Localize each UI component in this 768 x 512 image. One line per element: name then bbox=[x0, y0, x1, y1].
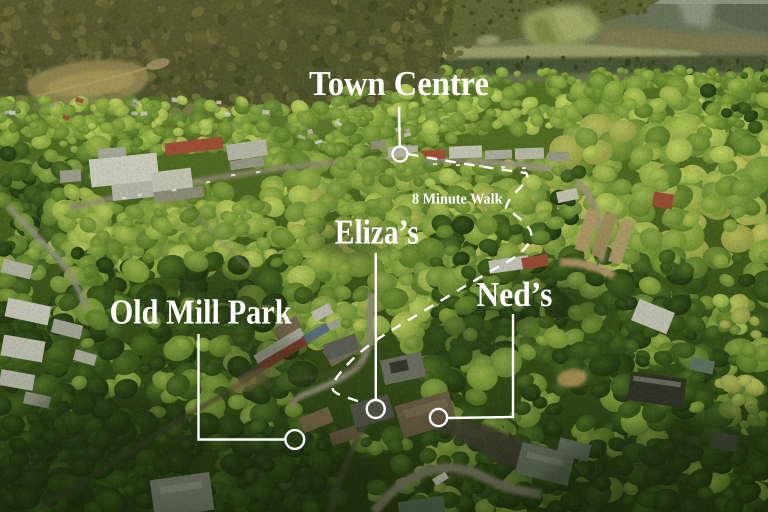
svg-text:8 Minute Walk: 8 Minute Walk bbox=[412, 192, 503, 208]
svg-text:Eliza’s: Eliza’s bbox=[335, 213, 419, 252]
svg-text:Town Centre: Town Centre bbox=[309, 64, 489, 103]
svg-text:Ned’s: Ned’s bbox=[476, 275, 552, 314]
svg-text:Old Mill Park: Old Mill Park bbox=[110, 292, 292, 331]
